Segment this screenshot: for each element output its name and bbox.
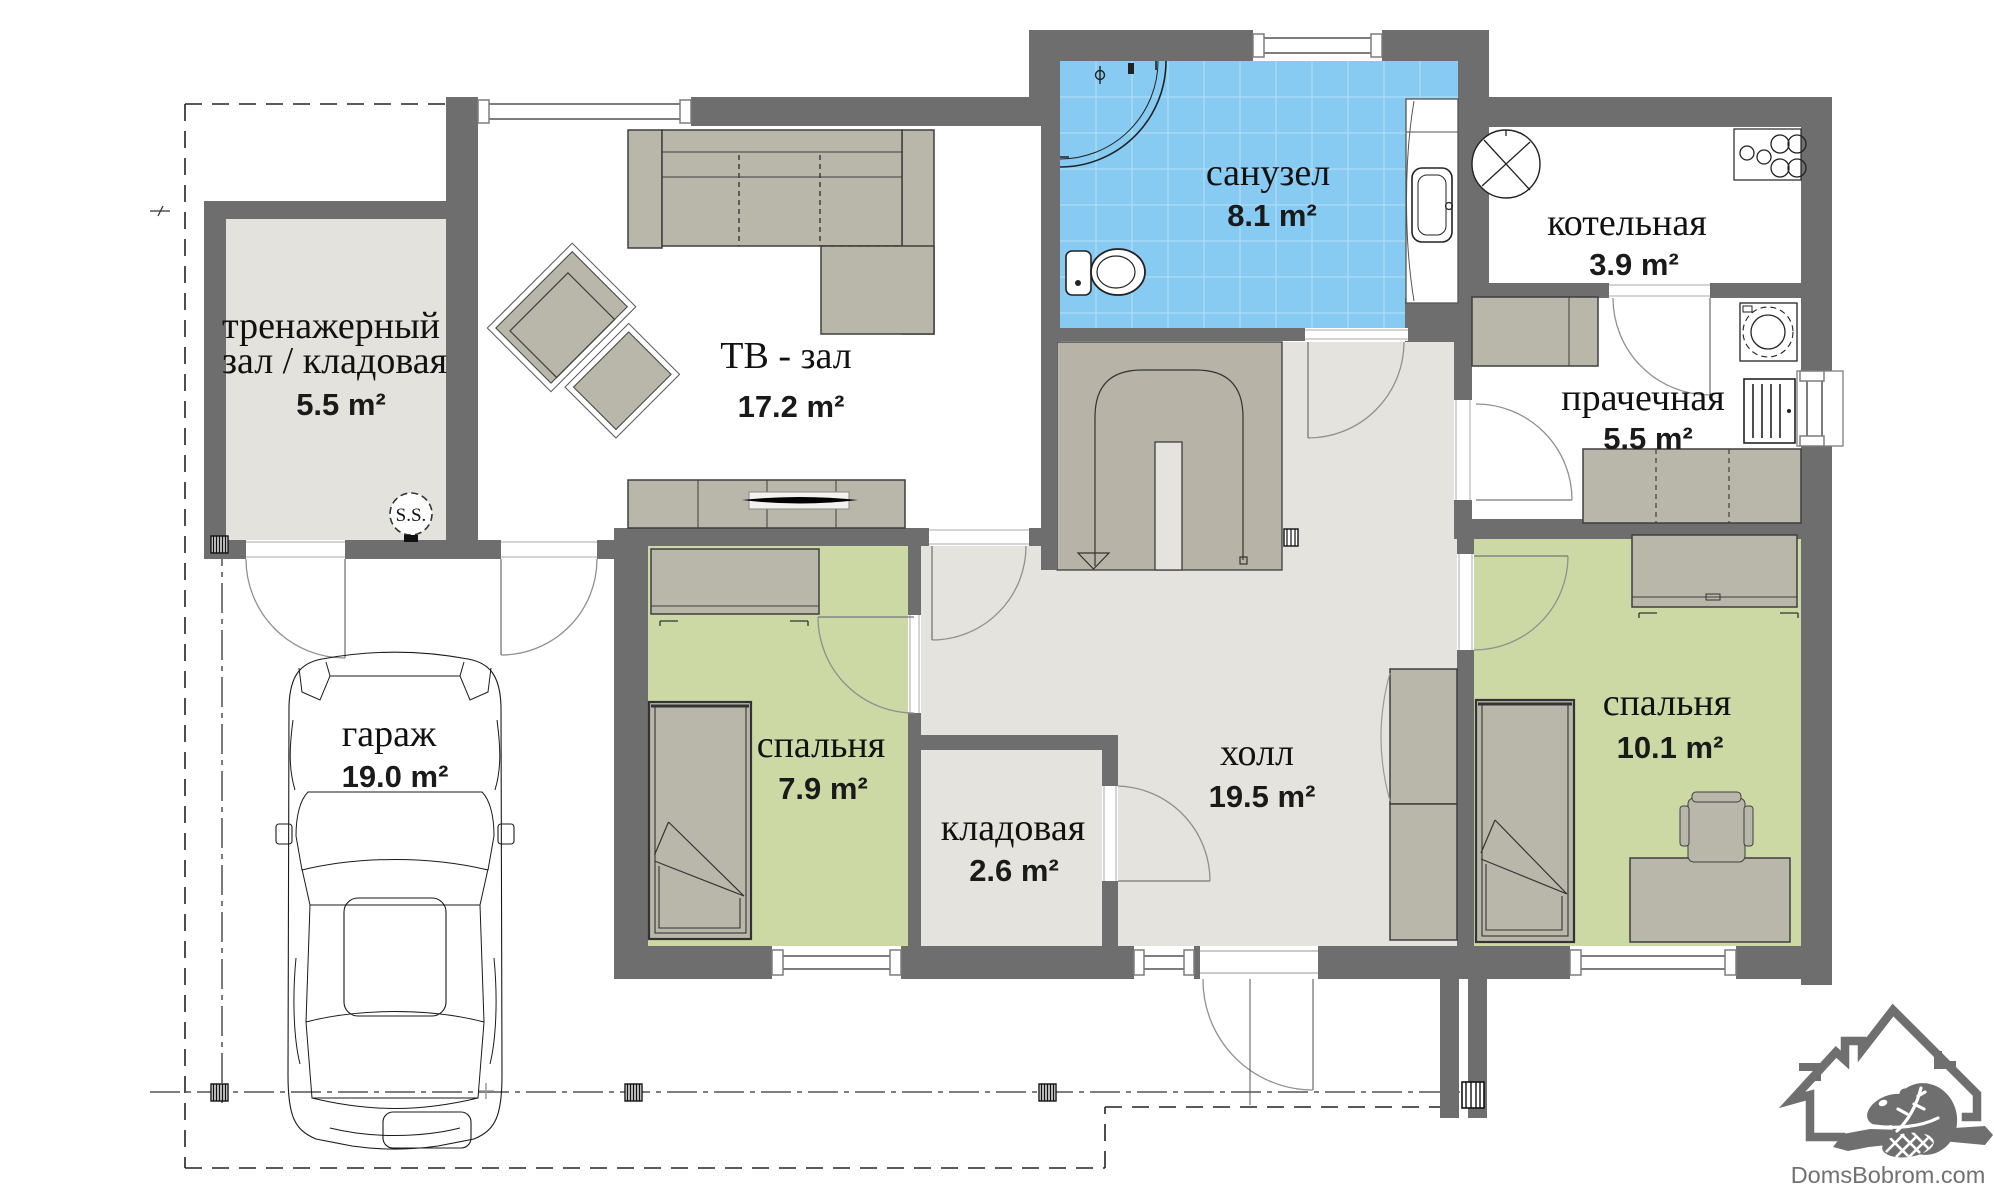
svg-text:19.0 m²: 19.0 m² (342, 759, 449, 794)
svg-text:7.9 m²: 7.9 m² (778, 771, 868, 806)
svg-text:котельная: котельная (1547, 202, 1706, 244)
svg-text:17.2 m²: 17.2 m² (738, 389, 845, 424)
svg-text:прачечная: прачечная (1561, 377, 1725, 419)
svg-text:гараж: гараж (342, 713, 437, 755)
svg-text:ТВ - зал: ТВ - зал (720, 335, 851, 377)
svg-text:S.S.: S.S. (396, 505, 427, 526)
svg-text:DomsBobrom.com: DomsBobrom.com (1791, 1162, 1986, 1188)
svg-text:19.5 m²: 19.5 m² (1209, 779, 1316, 814)
svg-text:зал / кладовая: зал / кладовая (222, 340, 447, 382)
svg-text:спальня: спальня (1603, 682, 1732, 724)
svg-text:кладовая: кладовая (941, 807, 1085, 849)
svg-text:8.1 m²: 8.1 m² (1227, 198, 1317, 233)
svg-text:5.5 m²: 5.5 m² (296, 387, 386, 422)
svg-text:холл: холл (1220, 732, 1294, 774)
svg-text:спальня: спальня (757, 724, 886, 766)
svg-text:10.1 m²: 10.1 m² (1617, 730, 1724, 765)
svg-text:2.6 m²: 2.6 m² (969, 853, 1059, 888)
svg-text:3.9 m²: 3.9 m² (1589, 247, 1679, 282)
svg-text:5.5 m²: 5.5 m² (1603, 421, 1693, 456)
svg-text:санузел: санузел (1206, 152, 1330, 194)
